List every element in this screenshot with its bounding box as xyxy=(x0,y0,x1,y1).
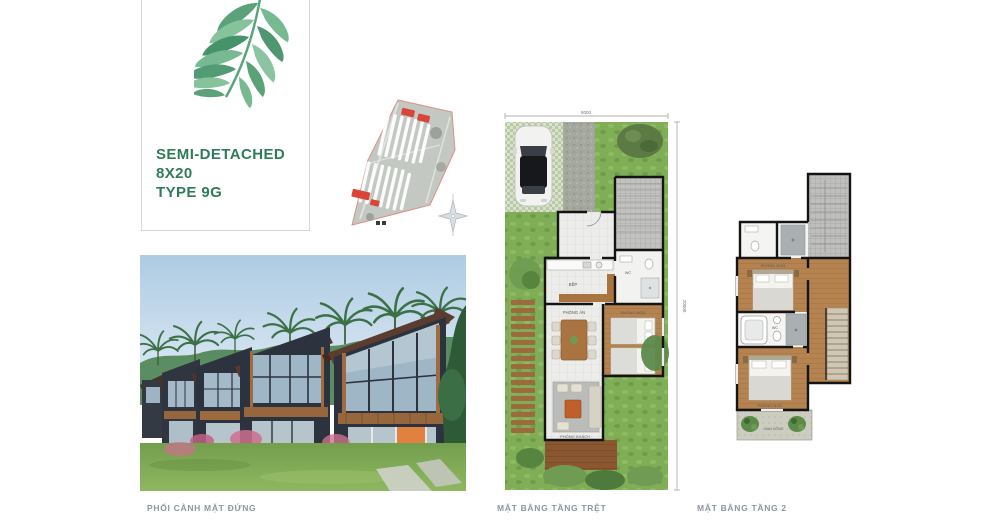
label-bedroom2: PHÒNG NGỦ xyxy=(758,403,783,408)
caption-floor2: MẶT BẰNG TẦNG 2 xyxy=(697,503,787,513)
dimension-depth xyxy=(674,122,680,490)
compass-rose-icon xyxy=(438,192,468,238)
title-card-text: SEMI-DETACHED 8X20 TYPE 9G xyxy=(156,145,285,202)
bed2 xyxy=(743,356,797,400)
title-line-1: SEMI-DETACHED xyxy=(156,145,285,164)
stairs xyxy=(826,308,848,380)
label-kitchen: BẾP xyxy=(569,282,578,287)
dim-depth-label: 20000 xyxy=(682,300,687,313)
car-top-view-icon xyxy=(513,126,554,206)
brochure-page: SEMI-DETACHED 8X20 TYPE 9G xyxy=(0,0,1000,521)
label-bedroom-gf: PHÒNG NGỦ xyxy=(621,310,646,315)
caption-render: PHỐI CẢNH MẶT ĐỨNG xyxy=(147,503,256,513)
label-living: PHÒNG KHÁCH xyxy=(560,434,590,439)
label-bath2f: WC xyxy=(772,326,778,330)
label-bedroom1: PHÒNG NGỦ xyxy=(761,263,786,268)
tropical-leaf-icon xyxy=(194,0,307,131)
bed1 xyxy=(747,270,799,310)
title-line-3: TYPE 9G xyxy=(156,183,285,202)
wood-deck xyxy=(545,440,617,470)
exterior-render-image xyxy=(140,255,466,491)
stair-void xyxy=(808,174,850,258)
dining-set xyxy=(552,320,596,360)
stair-hall xyxy=(615,177,663,250)
dim-width-label: 8000 xyxy=(581,110,592,115)
caption-floor1: MẶT BẰNG TẦNG TRỆT xyxy=(497,503,606,513)
floorplan-second-floor: PHÒNG NGỦ WC PHÒNG NGỦ xyxy=(725,168,885,468)
shrub xyxy=(617,124,663,158)
label-balcony: BAN CÔNG xyxy=(764,426,783,431)
label-wc: WC xyxy=(625,271,632,275)
entry-hall-floor xyxy=(558,212,615,258)
gravel-path xyxy=(563,122,595,212)
living-set xyxy=(553,382,601,432)
wood-walkway xyxy=(511,300,535,433)
title-card: SEMI-DETACHED 8X20 TYPE 9G xyxy=(141,0,310,231)
title-line-2: 8X20 xyxy=(156,164,285,183)
floorplan-ground-floor: 8000 20000 xyxy=(495,108,690,493)
label-dining: PHÒNG ĂN xyxy=(563,310,585,315)
